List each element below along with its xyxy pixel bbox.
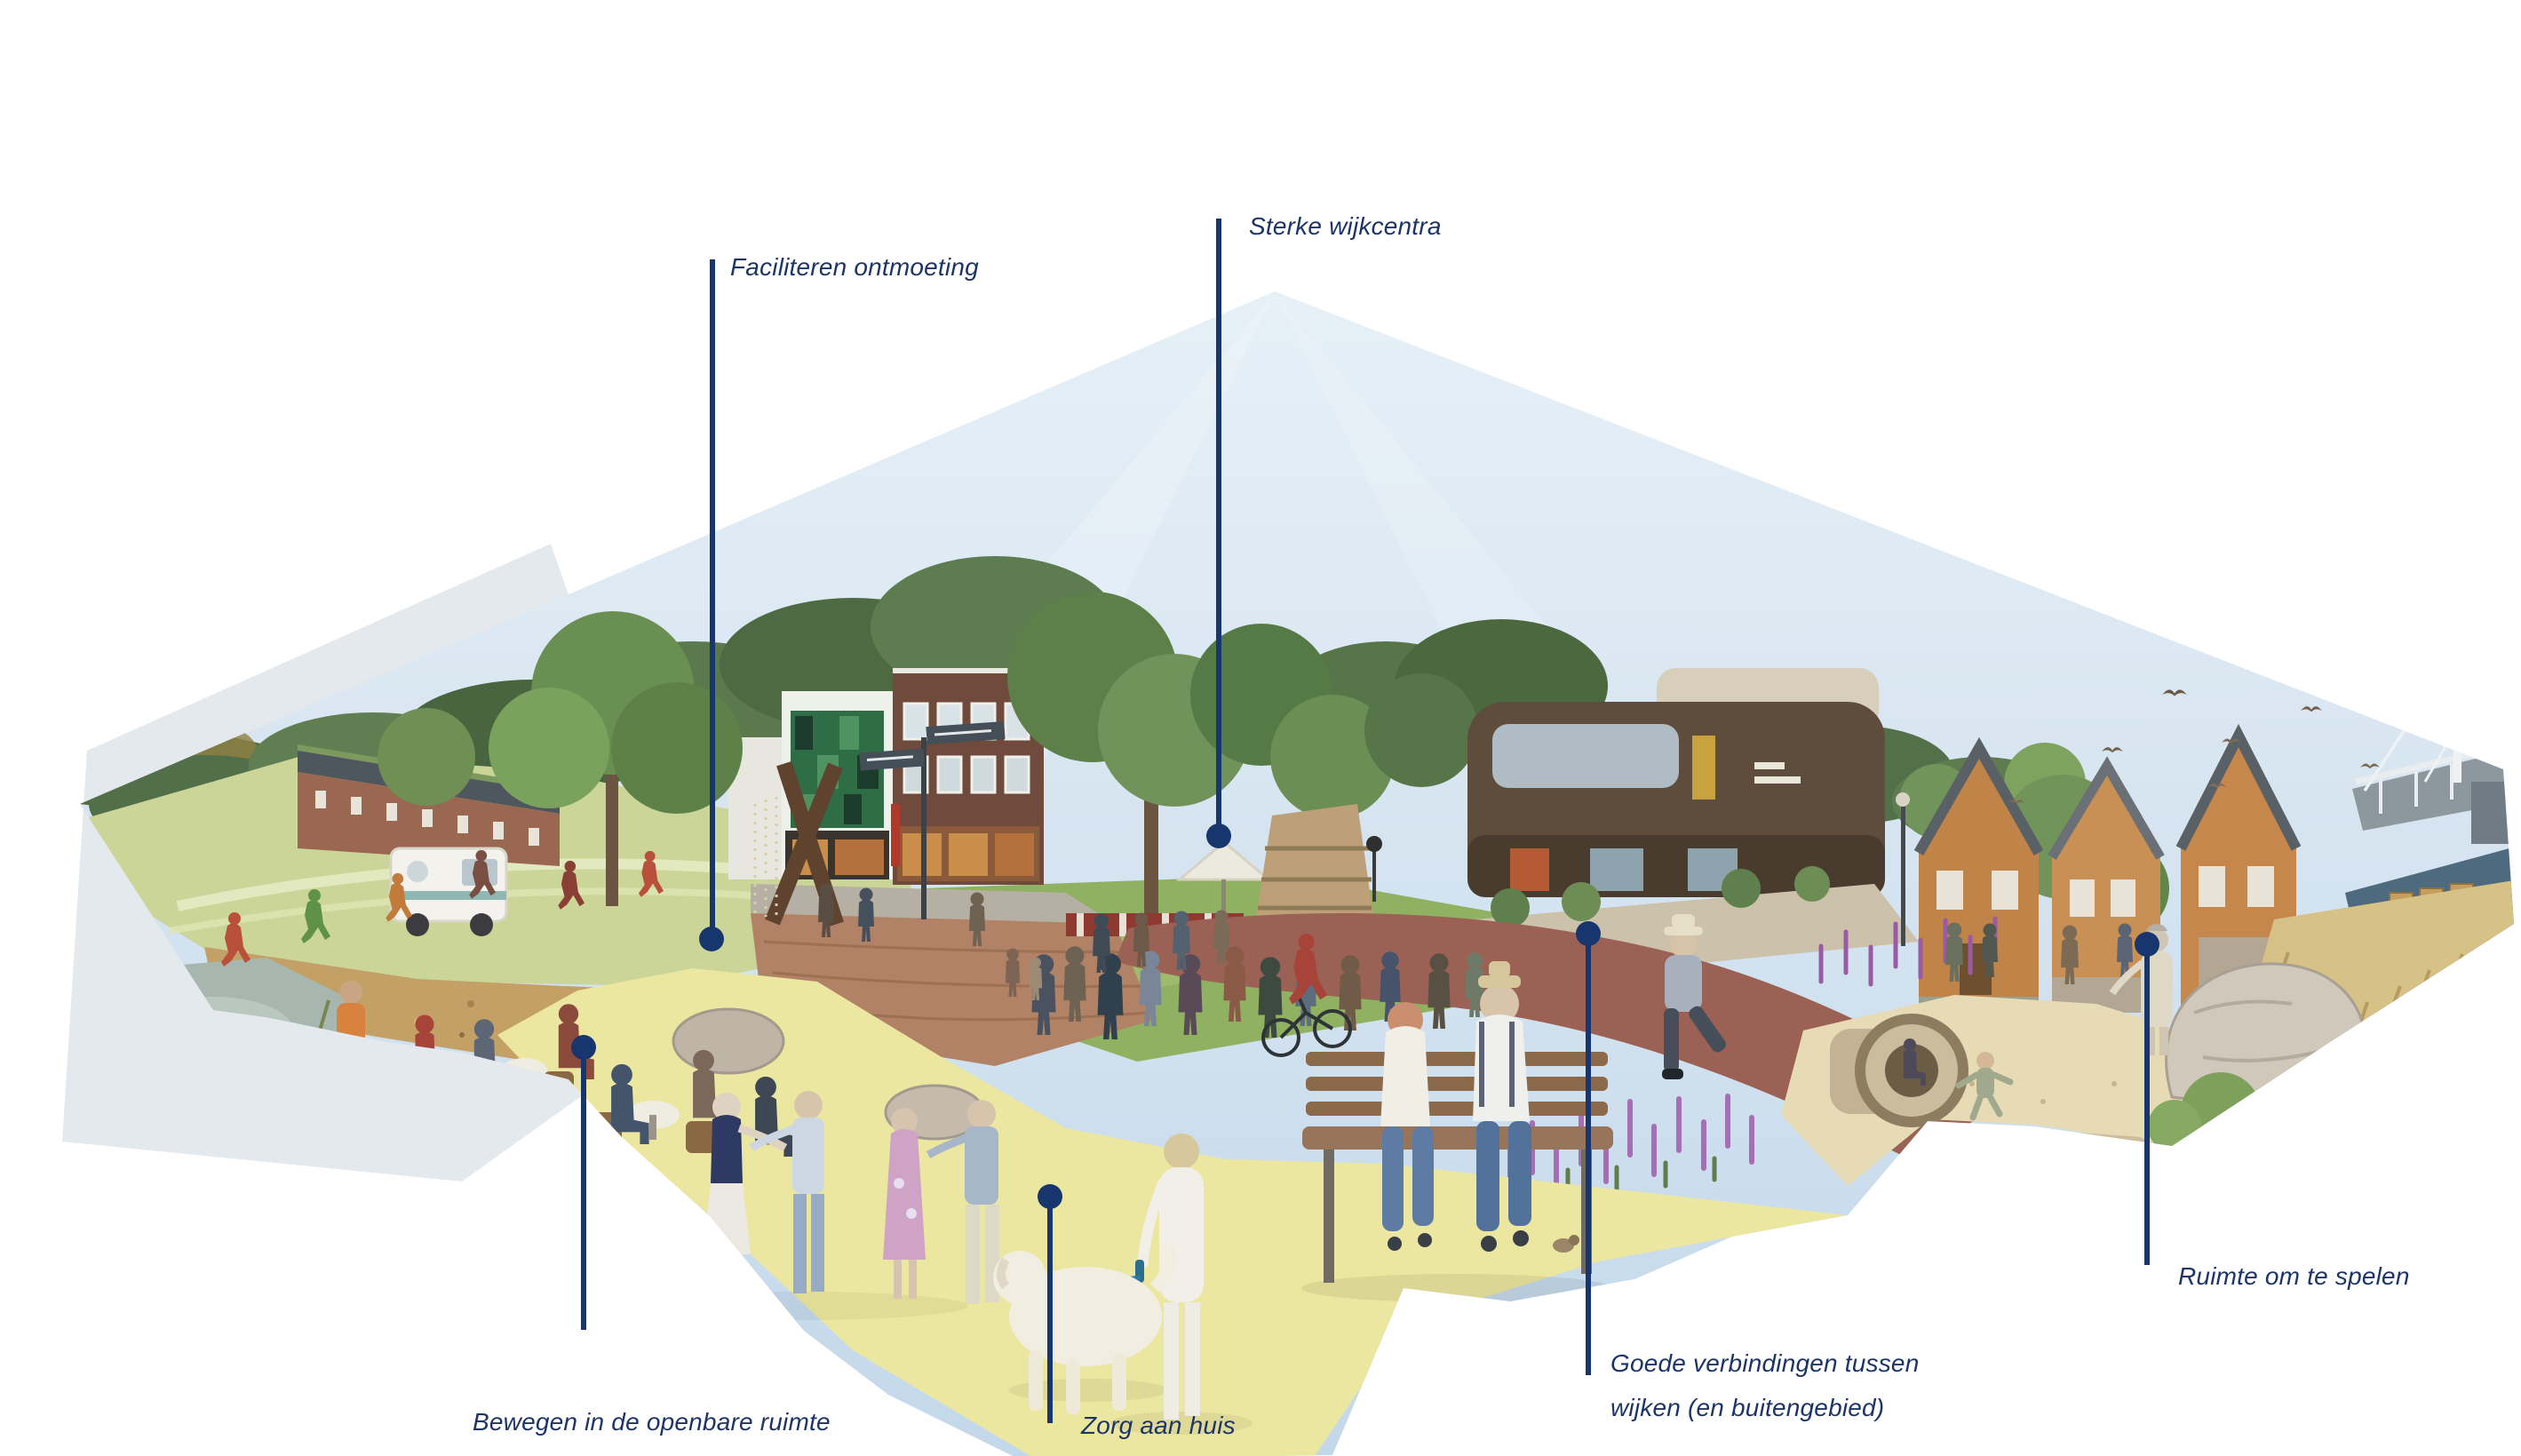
label-sterke-wijkcentra: Sterke wijkcentra (1249, 211, 1442, 242)
label-goede-verbindingen-line1: Goede verbindingen tussen (1610, 1341, 1919, 1386)
callout-line-spelen (2144, 954, 2150, 1265)
label-faciliteren-ontmoeting: Faciliteren ontmoeting (730, 252, 979, 282)
callout-line-verbindingen (1586, 943, 1591, 1375)
callout-dot-zorg (1038, 1184, 1062, 1209)
shadow (631, 1292, 968, 1320)
label-zorg-aan-huis: Zorg aan huis (1081, 1411, 1236, 1441)
label-goede-verbindingen-line2: wijken (en buitengebied) (1610, 1386, 1919, 1430)
callout-dot-faciliteren (699, 927, 724, 951)
callout-line-bewegen (581, 1057, 586, 1330)
shadow (1301, 1274, 1612, 1302)
callout-dot-verbindingen (1576, 921, 1601, 946)
label-ruimte-om-te-spelen: Ruimte om te spelen (2178, 1261, 2410, 1292)
label-bewegen-openbare-ruimte: Bewegen in de openbare ruimte (473, 1407, 831, 1437)
boulder (673, 1009, 783, 1073)
label-goede-verbindingen: Goede verbindingen tussen wijken (en bui… (1610, 1341, 1919, 1430)
callout-line-faciliteren (710, 259, 715, 927)
callout-line-sterke (1216, 219, 1221, 824)
callout-dot-bewegen (571, 1035, 596, 1060)
infographic-page: Faciliteren ontmoeting Sterke wijkcentra… (0, 0, 2521, 1456)
callout-dot-spelen (2135, 932, 2159, 957)
callout-dot-sterke (1206, 823, 1231, 848)
callout-line-zorg (1047, 1206, 1053, 1423)
